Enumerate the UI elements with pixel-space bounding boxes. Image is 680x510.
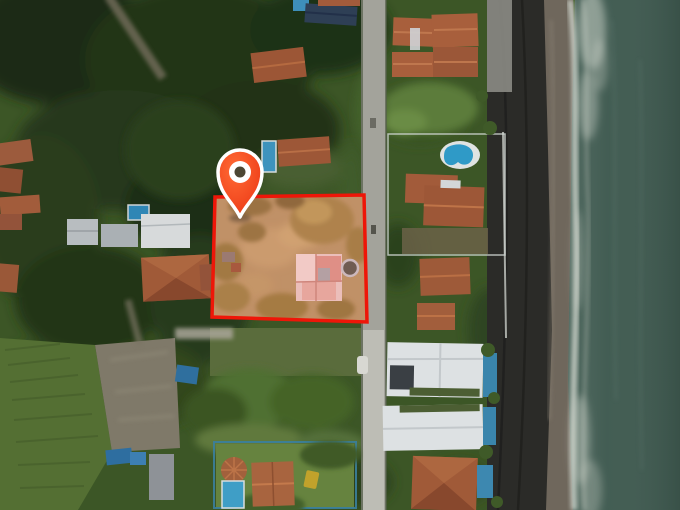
property-lot [205,188,375,328]
pool [222,481,244,508]
aerial-photo [0,0,680,510]
pool [262,141,276,172]
pool [483,353,497,397]
property-tint [212,195,367,322]
pool [483,407,496,445]
ocean [568,0,680,510]
parked-car [357,356,368,374]
pool-compound [214,441,360,510]
kidney-pool [444,144,473,165]
pool [477,465,493,498]
beach-access-road [487,0,512,92]
